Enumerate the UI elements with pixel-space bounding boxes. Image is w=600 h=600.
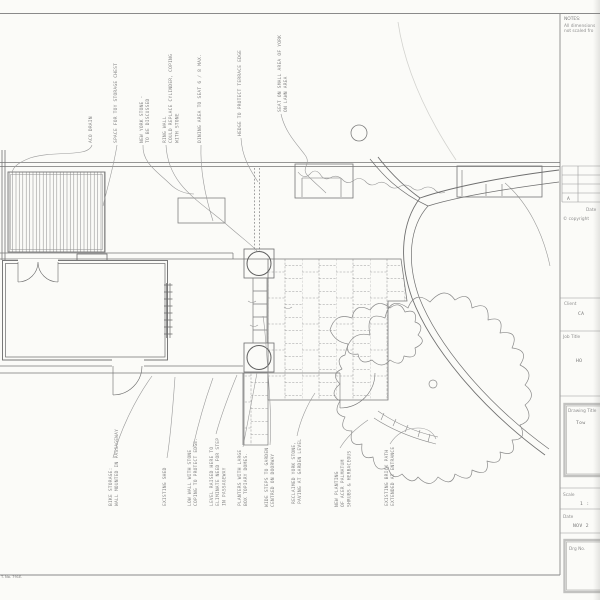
annotation-aco-drain: ACO DRAIN — [88, 116, 94, 143]
notes-line-2: not scaled fro — [564, 28, 594, 34]
svg-text:CENTRED ON DOORWAY: CENTRED ON DOORWAY — [270, 454, 276, 507]
svg-text:NEW PLANTING: NEW PLANTING — [334, 471, 340, 507]
drawing-title-label: Drawing Title — [568, 408, 597, 414]
svg-text:ACO DRAIN: ACO DRAIN — [88, 116, 94, 143]
svg-text:BIKE STORAGE:: BIKE STORAGE: — [108, 467, 114, 506]
drawing-title-value: Tow — [576, 420, 586, 426]
annotation-existing-shed: EXISTING SHED — [162, 467, 168, 506]
svg-text:LEVEL RAISED HERE TO: LEVEL RAISED HERE TO — [209, 447, 215, 506]
svg-text:PAVING AT GARDEN LEVEL: PAVING AT GARDEN LEVEL — [297, 439, 303, 504]
notes-title: NOTES: — [564, 16, 580, 22]
svg-text:ON LAWN AREA: ON LAWN AREA — [283, 76, 289, 112]
svg-text:SHRUBS & HERBACEOUS: SHRUBS & HERBACEOUS — [346, 451, 352, 507]
copyright-note: © copyright — [563, 215, 589, 222]
svg-text:ELIMINATE NEED FOR STEP: ELIMINATE NEED FOR STEP — [215, 438, 221, 506]
svg-text:NEW YORK STONE -: NEW YORK STONE - — [139, 96, 145, 143]
decking-area — [8, 172, 105, 252]
client-label: Client — [564, 301, 577, 307]
svg-text:WIDE STEPS TO GARDEN: WIDE STEPS TO GARDEN — [264, 448, 270, 507]
svg-text:HEDGE TO PROTECT TERRACE EDGE: HEDGE TO PROTECT TERRACE EDGE — [237, 50, 243, 136]
svg-text:EXISTING SHED: EXISTING SHED — [162, 467, 168, 506]
job-title-value: HO — [576, 358, 582, 364]
svg-text:LOW WALL WITH STONE: LOW WALL WITH STONE — [187, 450, 193, 506]
svg-text:WITH STONE: WITH STONE — [174, 113, 180, 143]
revision-row-a: A — [567, 196, 570, 202]
svg-text:RECLAIMED YORK STONE,: RECLAIMED YORK STONE, — [291, 442, 297, 504]
svg-text:SEAT ON SMALL AREA OF YORK: SEAT ON SMALL AREA OF YORK — [277, 35, 283, 112]
svg-text:PLANTERS WITH LARGE: PLANTERS WITH LARGE — [237, 450, 243, 506]
scale-value: 1 : — [580, 501, 590, 507]
date-value: NOV 2 — [573, 523, 589, 529]
job-title-label: Job Title — [562, 334, 581, 340]
svg-text:OF ACER PALMATUM: OF ACER PALMATUM — [340, 460, 346, 507]
svg-text:IN PASSAGEWAY: IN PASSAGEWAY — [221, 467, 227, 506]
svg-text:COPING TO PROTECT EDGE.: COPING TO PROTECT EDGE. — [193, 438, 199, 506]
svg-text:TO BE DISCUSSED: TO BE DISCUSSED — [145, 98, 151, 143]
footer-note: T. No. 791E. — [0, 575, 22, 579]
svg-text:RING WALL: RING WALL — [162, 116, 168, 143]
annotation-toy-storage: SPACE FOR TOY STORAGE CHEST — [113, 63, 119, 143]
svg-text:COULD REPLACE CYLINDER, COPING: COULD REPLACE CYLINDER, COPING — [168, 54, 174, 143]
annotation-dining-area: DINING AREA TO SEAT 6 / 8 MAX. — [197, 54, 203, 143]
svg-text:WALL MOUNTED IN PASSAGEWAY: WALL MOUNTED IN PASSAGEWAY — [114, 429, 120, 506]
revision-date-label: Date — [586, 207, 597, 213]
scale-label: Scale — [563, 492, 575, 498]
svg-text:EXTENDED AT ENTRANCE: EXTENDED AT ENTRANCE — [390, 447, 396, 506]
garden-plan-sheet: ACO DRAIN SPACE FOR TOY STORAGE CHEST NE… — [0, 0, 600, 600]
svg-text:SPACE FOR TOY STORAGE CHEST: SPACE FOR TOY STORAGE CHEST — [113, 63, 119, 143]
svg-text:BOX TOPIARY DOMES.: BOX TOPIARY DOMES. — [243, 453, 249, 506]
date-label: Date — [563, 514, 574, 520]
annotation-hedge: HEDGE TO PROTECT TERRACE EDGE — [237, 50, 243, 136]
svg-text:DINING AREA TO SEAT 6 / 8 MAX.: DINING AREA TO SEAT 6 / 8 MAX. — [197, 54, 203, 143]
drg-no-label: Drg No. — [569, 546, 585, 552]
svg-text:EXISTING BRICK PATH: EXISTING BRICK PATH — [384, 450, 390, 506]
client-value: CA — [578, 311, 584, 317]
